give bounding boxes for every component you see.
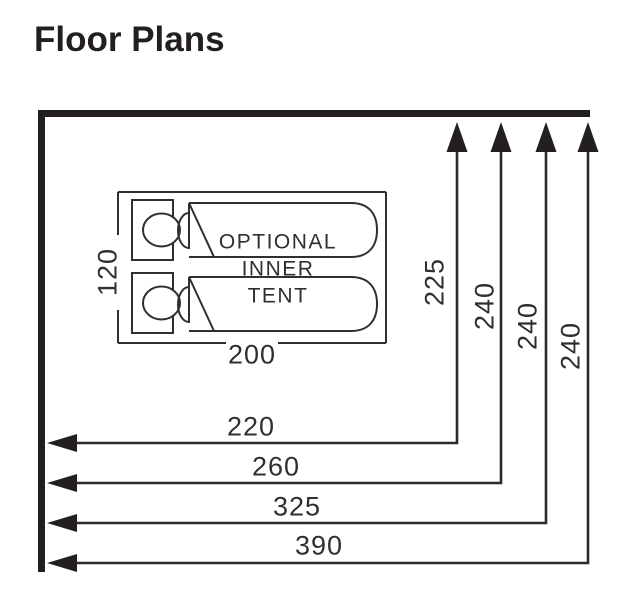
- inner-tent-label-line-1: OPTIONAL: [219, 229, 337, 256]
- wall-left: [38, 110, 45, 572]
- arrowhead-left-2: [47, 474, 77, 492]
- inner-tent-label-line-2: INNER: [219, 256, 337, 283]
- pillow: [143, 287, 180, 320]
- arrowhead-up-1: [447, 122, 468, 152]
- dim-label-height-2: 240: [470, 282, 501, 330]
- inner-tent-label: OPTIONAL INNER TENT: [219, 229, 337, 310]
- arrowhead-up-3: [536, 122, 557, 152]
- dim-label-width-1: 220: [227, 412, 275, 443]
- dim-label-height-3: 240: [513, 302, 544, 350]
- dim-label-inner-depth: 120: [93, 248, 124, 296]
- inner-tent-label-line-3: TENT: [219, 283, 337, 310]
- arrowhead-left-1: [47, 434, 77, 452]
- dim-label-width-3: 325: [273, 492, 321, 523]
- dim-label-height-4: 240: [556, 322, 587, 370]
- arrowhead-up-2: [491, 122, 512, 152]
- arrowhead-left-4: [47, 554, 77, 572]
- dim-label-width-2: 260: [252, 452, 300, 483]
- arrowhead-up-4: [578, 122, 599, 152]
- dim-label-width-4: 390: [295, 531, 343, 562]
- wall-top: [38, 110, 590, 117]
- floor-plan-figure: Floor Plans: [0, 0, 639, 609]
- dim-label-inner-width: 200: [228, 340, 276, 371]
- arrowhead-left-3: [47, 514, 77, 532]
- pillow: [143, 214, 180, 247]
- dim-label-height-1: 225: [420, 258, 451, 306]
